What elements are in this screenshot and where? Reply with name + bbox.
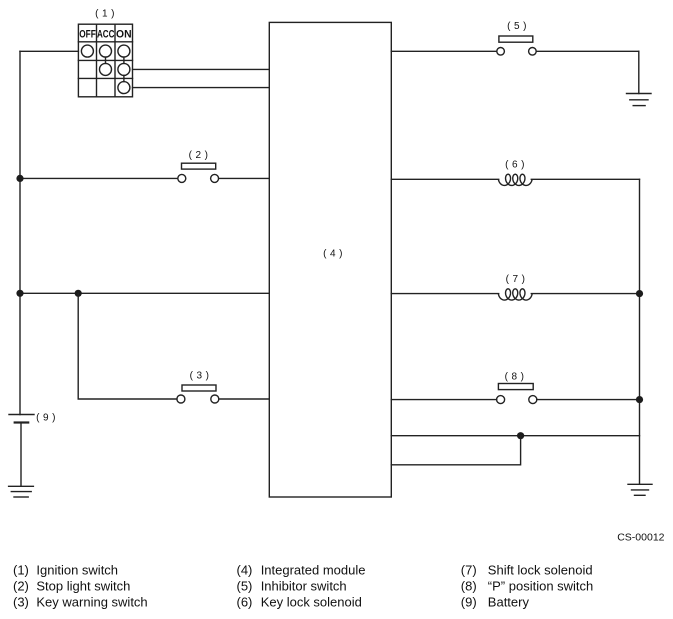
svg-text:“P” position switch: “P” position switch [488, 579, 593, 594]
svg-text:Key lock solenoid: Key lock solenoid [261, 595, 362, 610]
svg-text:( 8 ): ( 8 ) [505, 372, 525, 383]
svg-text:Key warning switch: Key warning switch [36, 595, 147, 610]
svg-text:CS-00012: CS-00012 [617, 532, 664, 544]
svg-text:( 1 ): ( 1 ) [95, 9, 115, 20]
svg-text:ON: ON [116, 29, 132, 41]
svg-text:( 6 ): ( 6 ) [505, 160, 525, 171]
svg-text:(3): (3) [13, 595, 29, 610]
svg-text:ACC: ACC [97, 29, 115, 41]
svg-text:( 3 ): ( 3 ) [190, 370, 210, 381]
svg-text:Integrated module: Integrated module [261, 563, 366, 578]
svg-text:( 2 ): ( 2 ) [189, 150, 209, 161]
svg-text:( 4 ): ( 4 ) [323, 249, 343, 260]
svg-text:(1): (1) [13, 563, 29, 578]
svg-text:(4): (4) [237, 563, 253, 578]
svg-text:(5): (5) [237, 579, 253, 594]
svg-text:Shift lock solenoid: Shift lock solenoid [488, 563, 593, 578]
svg-text:OFF: OFF [79, 29, 96, 41]
svg-text:Ignition switch: Ignition switch [36, 563, 118, 578]
svg-text:Battery: Battery [488, 595, 530, 610]
svg-text:Stop light switch: Stop light switch [36, 579, 130, 594]
svg-text:(8): (8) [461, 579, 477, 594]
svg-text:(9): (9) [461, 595, 477, 610]
svg-text:( 9 ): ( 9 ) [36, 413, 56, 424]
svg-text:(2): (2) [13, 579, 29, 594]
svg-text:(6): (6) [237, 595, 253, 610]
svg-text:Inhibitor switch: Inhibitor switch [261, 579, 347, 594]
svg-text:(7): (7) [461, 563, 477, 578]
svg-text:( 5 ): ( 5 ) [507, 21, 527, 32]
svg-text:( 7 ): ( 7 ) [506, 274, 526, 285]
